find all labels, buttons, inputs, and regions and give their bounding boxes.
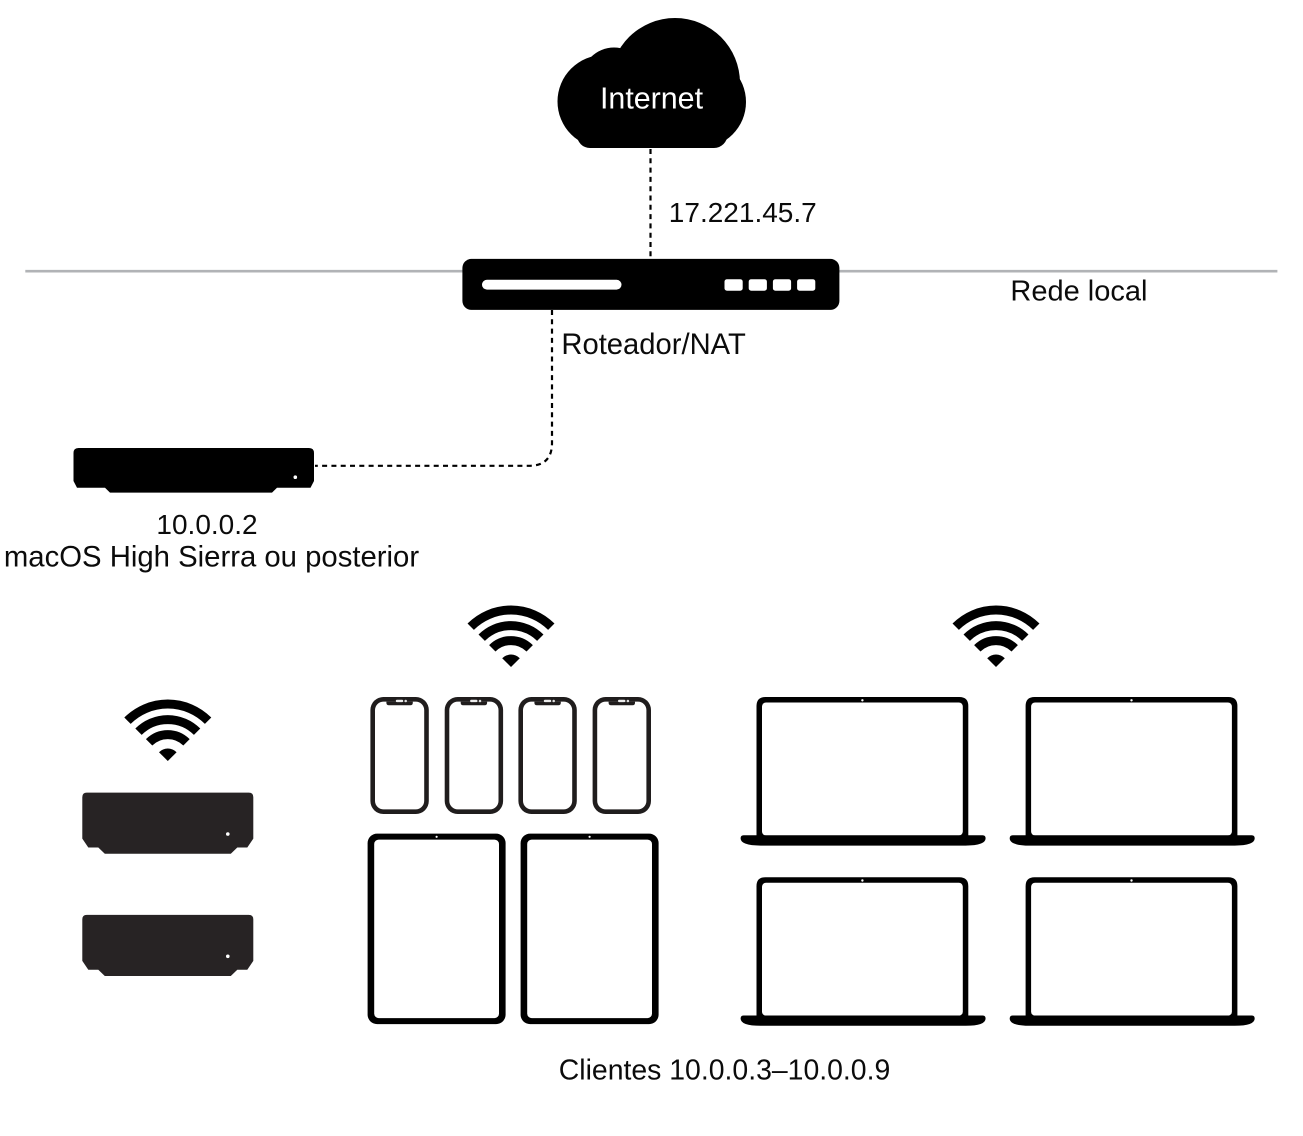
svg-text:Internet: Internet xyxy=(600,82,704,116)
svg-text:Clientes 10.0.0.3–10.0.0.9: Clientes 10.0.0.3–10.0.0.9 xyxy=(559,1055,890,1087)
svg-text:10.0.0.2: 10.0.0.2 xyxy=(156,509,257,540)
svg-text:Rede local: Rede local xyxy=(1010,276,1147,308)
svg-text:17.221.45.7: 17.221.45.7 xyxy=(669,197,817,228)
svg-text:Roteador/NAT: Roteador/NAT xyxy=(561,329,746,361)
svg-text:macOS High Sierra ou posterior: macOS High Sierra ou posterior xyxy=(4,541,419,574)
